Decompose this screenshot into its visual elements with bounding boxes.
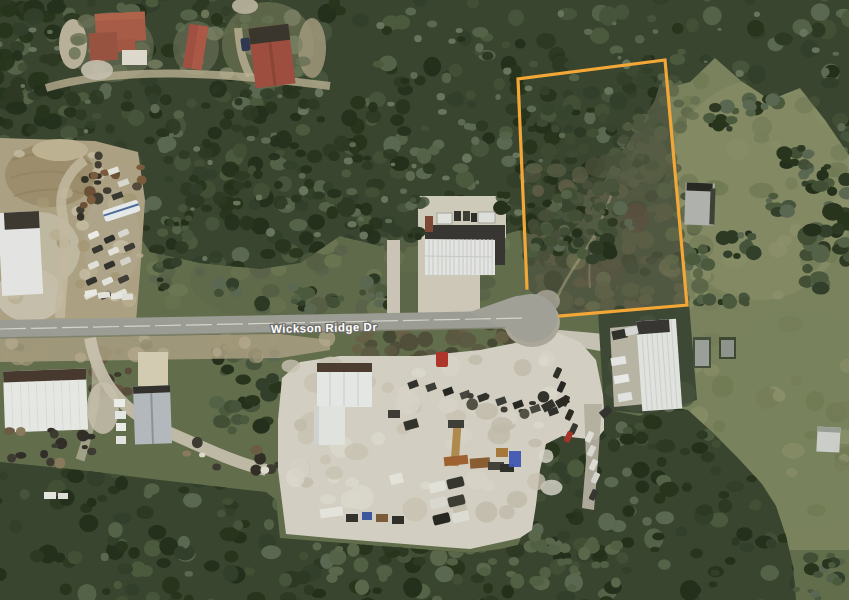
svg-text:Wickson Ridge Dr: Wickson Ridge Dr <box>271 321 378 335</box>
